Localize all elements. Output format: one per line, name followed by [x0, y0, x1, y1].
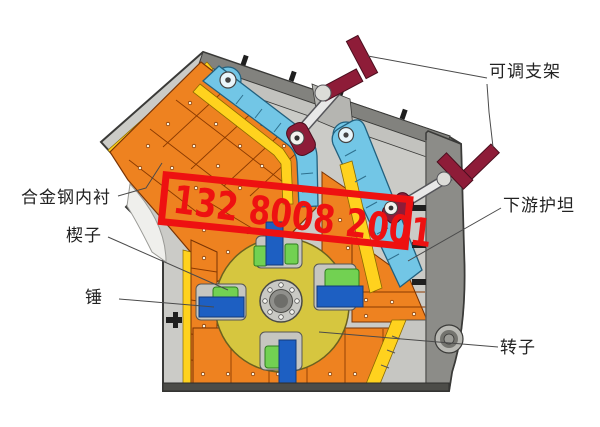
hammer-right: [317, 286, 363, 307]
bearing: [435, 325, 463, 353]
label-rotor: 转子: [500, 338, 536, 358]
wedge-top-left: [254, 246, 267, 266]
label-adjustable-bracket: 可调支架: [489, 62, 561, 82]
leader-adjustable-bracket-right: [487, 84, 493, 147]
label-downstream-apron: 下游护坦: [503, 196, 575, 216]
label-hammer: 锤: [85, 288, 103, 308]
label-alloy-steel-liner: 合金钢内衬: [21, 188, 111, 208]
wedge-right: [325, 269, 359, 288]
leader-adjustable-bracket-top: [368, 56, 487, 78]
hammer-left: [199, 297, 244, 317]
label-wedge: 楔子: [66, 226, 102, 246]
rotor-hub: [260, 280, 302, 322]
impact-crusher-diagram: 合金钢内衬 楔子 锤 可调支架 下游护坦 转子 132 8008 2001: [0, 0, 600, 427]
hammer-bottom: [279, 340, 296, 385]
wedge-top-right: [285, 244, 298, 264]
base-band: [163, 383, 449, 391]
